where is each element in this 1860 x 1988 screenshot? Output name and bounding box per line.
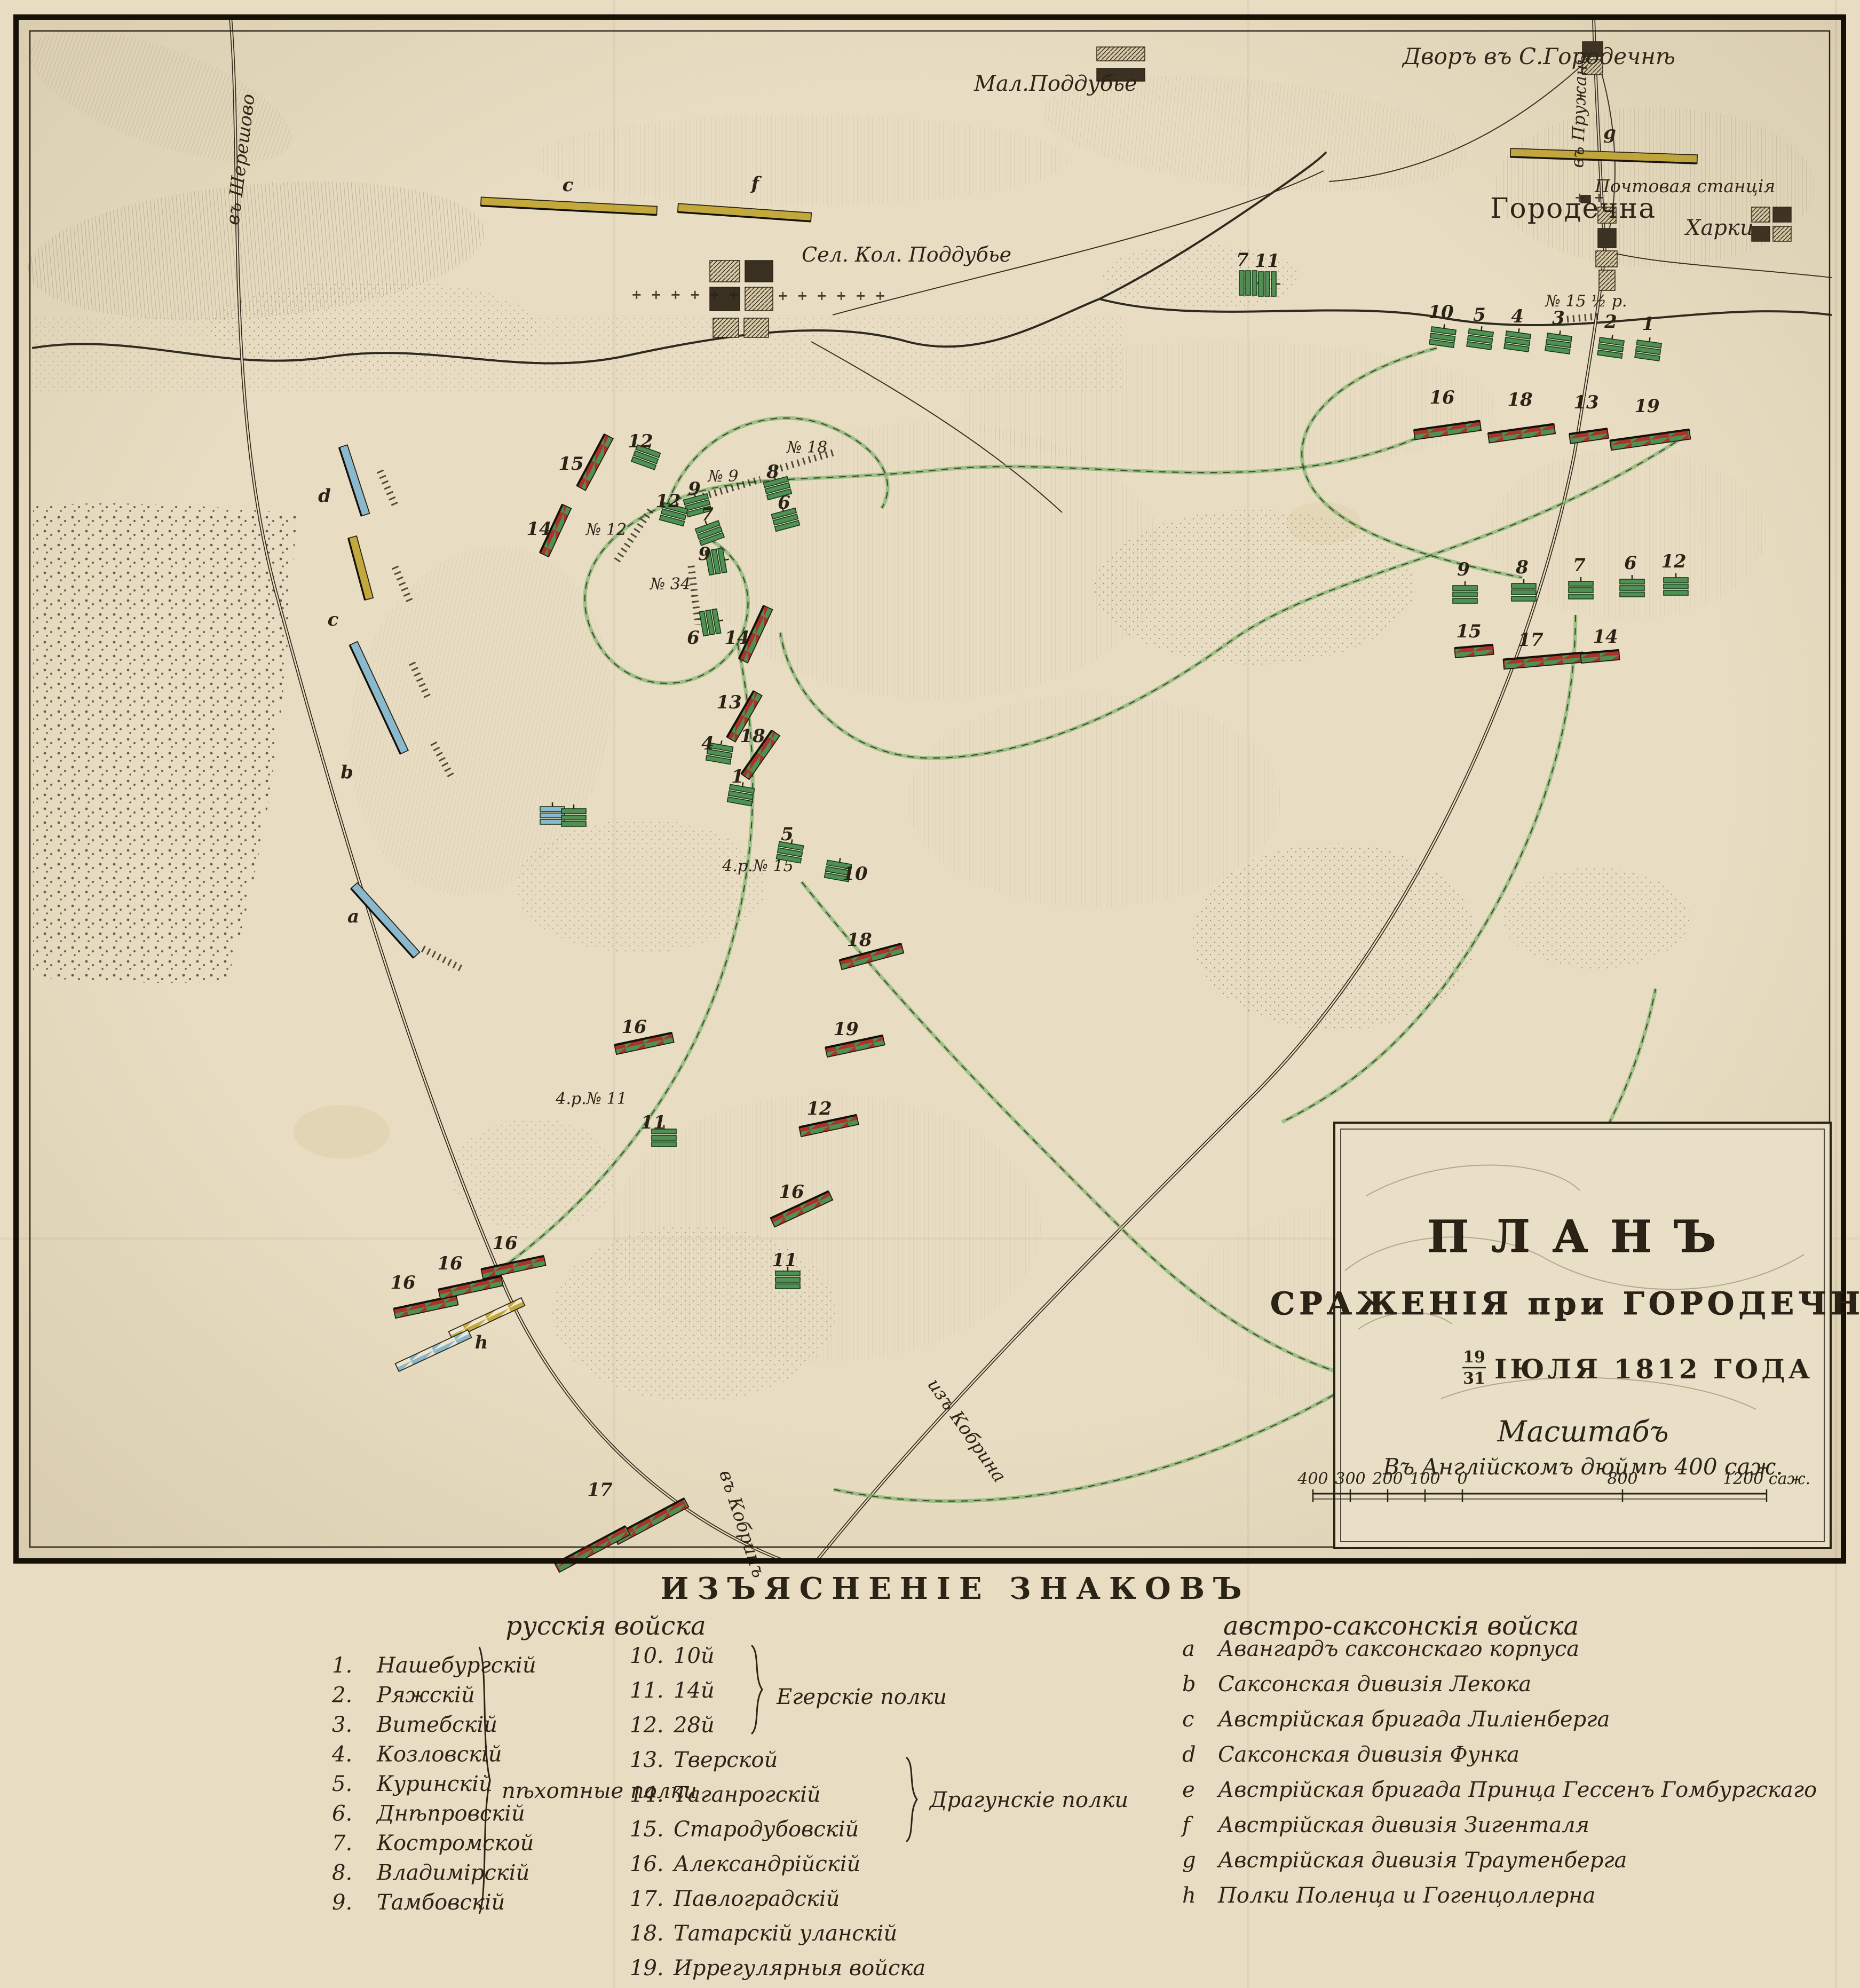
scale-tick-label: 400 xyxy=(1297,1470,1328,1488)
legend-row: 14.Таганрогскій xyxy=(630,1782,821,1807)
legend-row-name: Иррегулярныя войска xyxy=(673,1956,925,1981)
scale-tick-label: 100 xyxy=(1410,1470,1440,1488)
map-sheet: № 18№ 9№ 15 ½ р.№ 12№ 344.р.№ 154.р.№ 11… xyxy=(0,0,1860,1988)
legend-row-name: Куринскій xyxy=(376,1772,493,1796)
cartouche-title-line1: ПЛАНЪ xyxy=(1428,1211,1739,1263)
legend-row-number: 4. xyxy=(331,1742,352,1767)
legend-row-number: 5. xyxy=(332,1772,352,1796)
legend-row-number: 10. xyxy=(630,1644,664,1668)
legend-row-name: 14й xyxy=(674,1678,715,1703)
scale-tick-label: 200 xyxy=(1372,1470,1403,1488)
legend-row-name: Саксонская дивизія Функа xyxy=(1218,1742,1519,1767)
legend-dragoon-bracket-label: Драгунскіе полки xyxy=(929,1788,1128,1812)
date-text: ІЮЛЯ 1812 ГОДА xyxy=(1494,1353,1813,1385)
legend-row-name: Стародубовскій xyxy=(674,1817,859,1842)
legend-row: 19.Иррегулярныя войска xyxy=(630,1956,925,1981)
cartouche-title-line2: СРАЖЕНІЯ при ГОРОДЕЧНѢ xyxy=(1270,1285,1860,1322)
legend-row-name: 28й xyxy=(673,1713,715,1738)
legend-row-number: 15. xyxy=(630,1817,664,1842)
map-canvas: № 18№ 9№ 15 ½ р.№ 12№ 344.р.№ 154.р.№ 11… xyxy=(0,0,1860,1988)
legend-row-number: 1. xyxy=(332,1653,352,1678)
legend-row: 17.Павлоградскій xyxy=(630,1887,840,1911)
legend-row-number: e xyxy=(1182,1778,1195,1802)
date-fraction-denominator: 31 xyxy=(1463,1369,1485,1388)
legend-row-name: Саксонская дивизія Лекока xyxy=(1218,1672,1531,1697)
legend-row-number: 16. xyxy=(630,1852,664,1876)
scale-tick-label: 0 xyxy=(1457,1470,1467,1488)
legend-row-name: 10й xyxy=(674,1644,715,1668)
legend-row-number: 2. xyxy=(331,1683,352,1708)
legend-row-number: h xyxy=(1182,1883,1196,1908)
legend-row-name: Александрійскій xyxy=(672,1852,860,1876)
legend-row-number: 11. xyxy=(630,1678,664,1703)
legend-row-number: 8. xyxy=(332,1861,352,1886)
legend-row: 13.Тверской xyxy=(630,1748,778,1772)
legend-row-number: 13. xyxy=(630,1748,664,1772)
legend-row: eАвстрійская бригада Принца Гессенъ Гомб… xyxy=(1182,1778,1817,1802)
legend-row-name: Ряжскій xyxy=(376,1683,475,1708)
legend-row-number: d xyxy=(1182,1742,1196,1767)
scale-tick-label: 1200 саж. xyxy=(1723,1470,1810,1488)
legend-row-number: a xyxy=(1182,1637,1195,1661)
legend-row-number: 12. xyxy=(630,1713,664,1738)
legend-russian-header: русскія войска xyxy=(505,1611,706,1641)
legend-row: aАвангардъ саксонскаго корпуса xyxy=(1182,1637,1579,1661)
legend-row-name: Нашебургскій xyxy=(376,1653,536,1678)
legend-row-name: Полки Поленца и Гогенцоллерна xyxy=(1217,1883,1595,1908)
cartouche-date: 19 31 ІЮЛЯ 1812 ГОДА xyxy=(1462,1348,1813,1388)
legend-row-number: 18. xyxy=(630,1921,664,1946)
legend-row-name: Витебскій xyxy=(376,1713,497,1737)
scale-tick-label: 800 xyxy=(1607,1470,1637,1488)
legend-row-number: 7. xyxy=(332,1831,352,1856)
legend-row-name: Австрійская дивизія Траутенберга xyxy=(1216,1848,1627,1873)
scale-tick-label: 300 xyxy=(1335,1470,1365,1488)
scale-word: Масштабъ xyxy=(1497,1415,1668,1448)
legend-row-name: Авангардъ саксонскаго корпуса xyxy=(1216,1637,1579,1661)
legend-row-number: 17. xyxy=(630,1887,664,1911)
legend-jaeger-bracket-label: Егерскіе полки xyxy=(776,1685,947,1709)
legend-row: gАвстрійская дивизія Траутенберга xyxy=(1182,1848,1627,1873)
legend-row-name: Павлоградскій xyxy=(673,1887,840,1911)
legend-row-name: Австрійская дивизія Зигенталя xyxy=(1216,1813,1589,1837)
legend-row-name: Австрійская бригада Лиліенберга xyxy=(1216,1707,1610,1732)
legend-row-name: Костромской xyxy=(376,1831,534,1856)
legend-row-number: 19. xyxy=(630,1956,664,1981)
legend-row-number: 6. xyxy=(332,1802,352,1826)
legend-row-number: c xyxy=(1182,1707,1194,1732)
legend-row: cАвстрійская бригада Лиліенберга xyxy=(1182,1707,1610,1732)
legend-row-name: Таганрогскій xyxy=(674,1782,821,1807)
legend-row-number: b xyxy=(1182,1672,1196,1697)
legend-row-name: Австрійская бригада Принца Гессенъ Гомбу… xyxy=(1216,1778,1817,1802)
legend-infantry-bracket-label: пѣхотные полки xyxy=(502,1779,697,1803)
legend-row-number: 9. xyxy=(332,1890,352,1915)
legend-row-name: Днѣпровскій xyxy=(376,1802,525,1826)
legend-row: bСаксонская дивизія Лекока xyxy=(1182,1672,1531,1697)
legend-row-name: Татарскій уланскій xyxy=(674,1921,897,1946)
legend-row-name: Тверской xyxy=(674,1748,778,1772)
legend-row-number: g xyxy=(1182,1848,1196,1873)
legend-row-number: 14. xyxy=(630,1782,664,1807)
title-cartouche: ПЛАНЪ СРАЖЕНІЯ при ГОРОДЕЧНѢ 19 31 ІЮЛЯ … xyxy=(1270,1123,1860,1548)
legend-row-name: Козловскій xyxy=(376,1742,502,1767)
legend-row-number: 3. xyxy=(332,1713,352,1737)
legend-row: fАвстрійская дивизія Зигенталя xyxy=(1181,1813,1589,1837)
date-fraction-numerator: 19 xyxy=(1463,1348,1485,1367)
legend-row: hПолки Поленца и Гогенцоллерна xyxy=(1182,1883,1595,1908)
legend-row-name: Тамбовскій xyxy=(377,1890,505,1915)
legend-row-name: Владимірскій xyxy=(376,1861,529,1886)
legend-header: ИЗЪЯСНЕНІЕ ЗНАКОВЪ xyxy=(660,1571,1250,1606)
legend-row: dСаксонская дивизія Функа xyxy=(1182,1742,1519,1767)
